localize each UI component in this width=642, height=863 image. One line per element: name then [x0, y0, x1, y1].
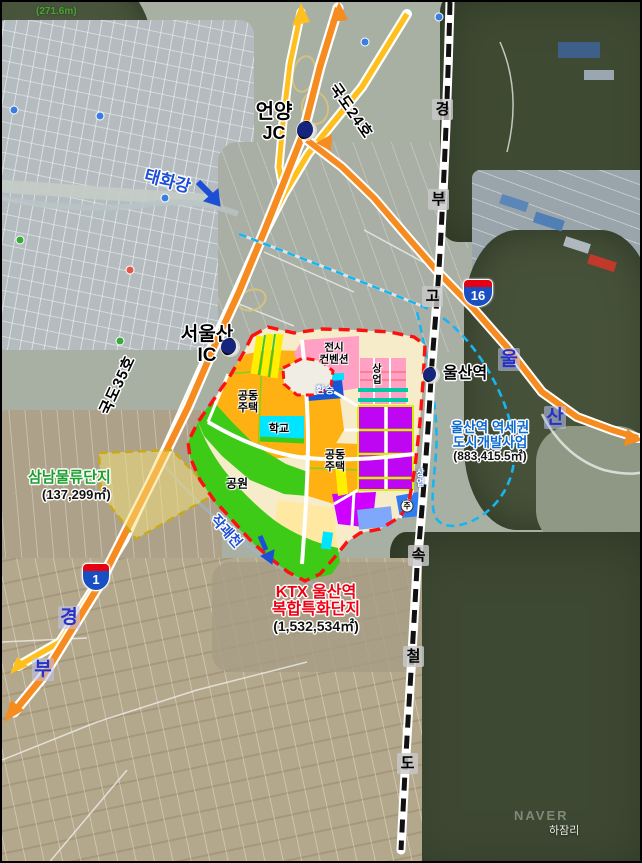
- zone-exhibition: 전시 컨벤션: [320, 342, 349, 365]
- eonyang-jc-label: 언양 JC: [242, 102, 306, 143]
- gyeongbu-expwy-char-2: 부: [32, 658, 54, 681]
- rail-char-5: 철: [403, 646, 424, 667]
- zone-park: 공원: [226, 477, 248, 490]
- seoulsan-ic-marker: [221, 338, 239, 356]
- station-district-name1: 울산역 역세권: [434, 421, 546, 436]
- shield-number: 1: [82, 571, 110, 591]
- ulsan-station-marker: [423, 367, 439, 383]
- rail-char-1: 경: [432, 99, 453, 120]
- expressway-16-shield: 16: [463, 279, 493, 307]
- rail-char-4: 속: [408, 545, 429, 566]
- gyeongbu-expwy-char-1: 경: [58, 606, 80, 629]
- eonyang-jc-marker: [297, 121, 316, 140]
- map-overlay: [2, 2, 642, 863]
- eonyang-jc-line1: 언양: [242, 102, 306, 124]
- ktx-complex-name1: KTX 울산역: [246, 584, 386, 601]
- taehwa-river-line: [2, 198, 238, 214]
- shield-number: 16: [463, 287, 493, 307]
- eonyang-jc-line2: JC: [242, 124, 306, 143]
- elevation-label: (271.6m): [36, 6, 77, 17]
- zone-parking-icon: 주: [401, 500, 414, 513]
- rail-char-6: 도: [397, 753, 418, 774]
- ktx-complex-area: (1,532,534㎡): [246, 619, 386, 634]
- ktx-complex-label: KTX 울산역 복합특화단지 (1,532,534㎡): [246, 584, 386, 634]
- zone-commercial-south: 상업: [414, 468, 424, 488]
- ktx-complex-name2: 복합특화단지: [246, 601, 386, 618]
- rail-char-2: 부: [428, 189, 449, 210]
- ulsan-expwy-char-1: 울: [498, 348, 520, 371]
- village-label: 하잠리: [549, 822, 579, 838]
- expressway-1-shield: 1: [82, 563, 110, 591]
- satellite-map: (271.6m) 언양 JC 서울산 IC 울산역 국도24호 국도35호 태화…: [0, 0, 642, 863]
- rail-char-3: 고: [422, 286, 443, 307]
- industrial-buildings: [499, 42, 617, 272]
- ulsan-station-label: 울산역: [443, 365, 487, 382]
- samnam-zone-name: 삼남물류단지: [28, 470, 111, 486]
- zone-commercial-east: 상업: [370, 363, 381, 385]
- zone-apartment-nw: 공동 주택: [238, 390, 258, 414]
- station-district-area: (883,415.5㎡): [434, 450, 546, 463]
- zone-apartment-center: 공동 주택: [325, 449, 345, 473]
- samnam-zone-area: (137,299㎡): [42, 488, 111, 502]
- station-district-name2: 도시개발사업: [434, 436, 546, 451]
- zone-school: 학교: [269, 423, 289, 435]
- zone-transfer: 환승: [316, 386, 334, 397]
- station-district-label: 울산역 역세권 도시개발사업 (883,415.5㎡): [434, 421, 546, 463]
- ulsan-expwy-char-2: 산: [544, 406, 566, 429]
- naver-watermark: NAVER: [514, 808, 569, 823]
